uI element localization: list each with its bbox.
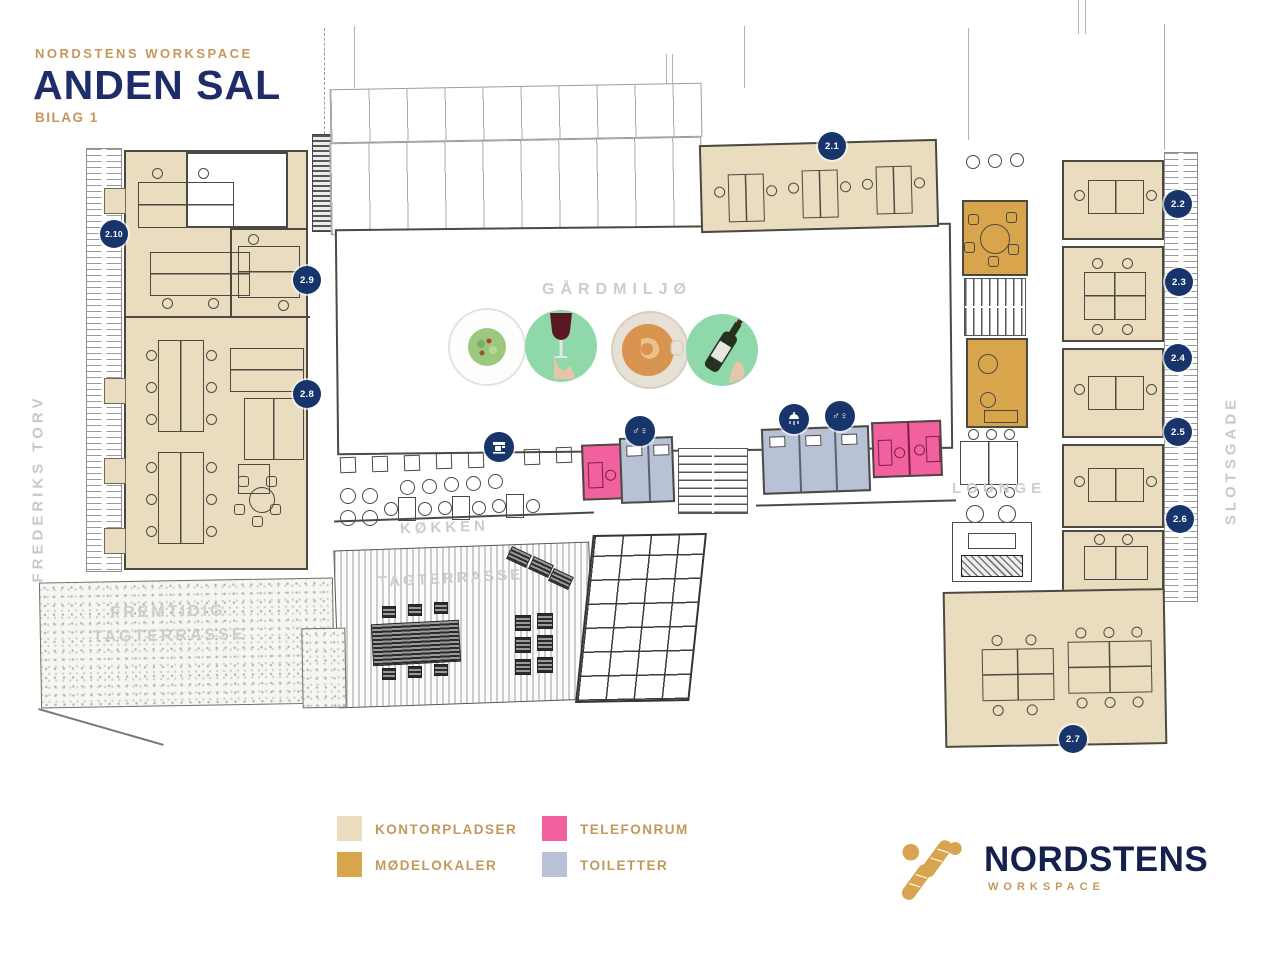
stool [466, 476, 481, 491]
chair [146, 526, 157, 537]
sofa [230, 348, 304, 392]
side-table [980, 392, 996, 408]
long-table [158, 340, 204, 432]
terrace-chair [408, 604, 422, 616]
chair [1074, 384, 1085, 395]
lounge-label: LOUNGE [952, 480, 1046, 497]
terrace-chair [515, 659, 531, 675]
logo-name: NORDSTENS [984, 840, 1208, 880]
chair [438, 501, 452, 515]
room-2-6 [1062, 530, 1164, 592]
desk-cluster [1088, 180, 1144, 214]
phone-room-pair [871, 420, 943, 478]
chair [248, 234, 259, 245]
chair [1077, 697, 1088, 708]
roof-skylights-row1 [330, 83, 703, 143]
brand-text: NORDSTENS WORKSPACE [35, 46, 253, 61]
room-badge-2-8: 2.8 [293, 380, 321, 408]
wall [834, 428, 838, 490]
chair [1122, 258, 1133, 269]
room-badge-2-5: 2.5 [1164, 418, 1192, 446]
coffee-machine-icon [484, 432, 514, 462]
chair [206, 382, 217, 393]
legend-swatch-modelokaler [337, 852, 362, 877]
desk-cluster [802, 170, 839, 219]
toilet-fixture [841, 434, 857, 446]
legend-label-kontorpladser: KONTORPLADSER [375, 822, 517, 837]
desk-cluster [1084, 272, 1146, 320]
toilet-fixture [626, 445, 642, 457]
chair [362, 510, 378, 526]
courtyard-label: GÅRDMILJØ [527, 281, 707, 299]
desk-cluster [1088, 468, 1144, 502]
glass-grid-structure [575, 533, 707, 703]
room-badge-2-6: 2.6 [1166, 505, 1194, 533]
room-2-3 [1062, 246, 1164, 342]
stool [488, 474, 503, 489]
kitchen-counter [404, 455, 421, 472]
chair [788, 183, 799, 194]
chair [1092, 258, 1103, 269]
sofa [244, 398, 304, 460]
terrace-chair [515, 637, 531, 653]
wine-glass-photo [524, 309, 598, 383]
chair [914, 444, 925, 455]
guide-line [354, 26, 355, 88]
long-table [158, 452, 204, 544]
toilet-block [619, 436, 675, 504]
stool [966, 155, 980, 169]
stool [422, 479, 437, 494]
chair [234, 504, 245, 515]
salad-photo [448, 308, 526, 386]
kitchen-label: KØKKEN [400, 517, 490, 537]
room-2-2 [1062, 160, 1164, 240]
room-badge-2-2: 2.2 [1164, 190, 1192, 218]
stool [400, 480, 415, 495]
chair [270, 504, 281, 515]
chair [986, 429, 997, 440]
chair [968, 214, 979, 225]
chair [152, 168, 163, 179]
chair [968, 429, 979, 440]
chair [384, 502, 398, 516]
desk-cluster [728, 173, 765, 222]
meeting-room-top [962, 200, 1028, 276]
tv [968, 533, 1016, 549]
armchair [978, 354, 998, 374]
room-badge-2-7: 2.7 [1059, 725, 1087, 753]
terrace-chair [537, 613, 553, 629]
terrace-chair [382, 668, 396, 680]
chair [964, 242, 975, 253]
chair [146, 494, 157, 505]
terrace-chair [434, 602, 448, 614]
toilet-glyph: ♂♀ [632, 425, 648, 437]
desk-cluster [238, 246, 300, 298]
desk [926, 436, 941, 462]
lounge-table [960, 441, 1018, 485]
desk-cluster [876, 166, 913, 215]
legend-swatch-telefonrum [542, 816, 567, 841]
kitchen-counter [372, 456, 389, 473]
sofa [961, 555, 1023, 577]
window-sill [104, 458, 126, 484]
guide-line [324, 28, 325, 134]
legend-label-toiletter: TOILETTER [580, 858, 668, 873]
chair [1146, 476, 1157, 487]
chair [1105, 697, 1116, 708]
street-label-slotsgade: SLOTSGADE [1223, 311, 1240, 611]
staircase-center [678, 448, 748, 514]
legend-label-telefonrum: TELEFONRUM [580, 822, 689, 837]
chair [472, 501, 486, 515]
chair [418, 502, 432, 516]
chair [146, 462, 157, 473]
cafe-table [398, 497, 416, 521]
chair [206, 526, 217, 537]
chair [252, 516, 263, 527]
cafe-table [506, 494, 524, 518]
chair [198, 168, 209, 179]
meeting-room-mid [966, 338, 1028, 428]
chair [991, 635, 1002, 646]
kitchen-counter [436, 453, 453, 470]
roof-skylights-row2 [329, 137, 703, 235]
guide-line [968, 28, 969, 140]
guide-line [1164, 24, 1165, 150]
stool [444, 477, 459, 492]
terrace-chair [537, 657, 553, 673]
legend-label-modelokaler: MØDELOKALER [375, 858, 497, 873]
wall [230, 228, 308, 230]
legend-swatch-kontorpladser [337, 816, 362, 841]
stair-divider [712, 449, 714, 513]
armchair [966, 505, 984, 523]
terrace-table [371, 620, 461, 667]
chair [208, 298, 219, 309]
chair [238, 476, 249, 487]
room-2-4 [1062, 348, 1164, 438]
guide-line [1078, 0, 1079, 34]
stool [988, 154, 1002, 168]
toilet-block [761, 425, 871, 495]
legend-swatch-toiletter [542, 852, 567, 877]
nordstens-logo-icon [896, 830, 970, 904]
chair [206, 494, 217, 505]
terrace-chair [537, 635, 553, 651]
chair [1027, 704, 1038, 715]
chair [914, 177, 925, 188]
wall [647, 439, 651, 501]
chair [840, 181, 851, 192]
kitchen-counter [340, 457, 357, 474]
wall [798, 430, 802, 492]
chair [278, 300, 289, 311]
wine-bottle-photo [685, 313, 759, 387]
toilet-icon: ♂♀ [825, 401, 855, 431]
coffee-photo [611, 311, 689, 389]
chair [1133, 696, 1144, 707]
chair [362, 488, 378, 504]
cafe-table [452, 496, 470, 520]
wall-hatch-east [1164, 152, 1198, 602]
future-terrace-area [301, 628, 346, 709]
toilet-fixture [769, 436, 785, 448]
kitchen-counter [556, 447, 573, 464]
chair [1094, 534, 1105, 545]
chair [988, 256, 999, 267]
room-badge-2-10: 2.10 [100, 220, 128, 248]
chair [1074, 190, 1085, 201]
room-badge-2-3: 2.3 [1165, 268, 1193, 296]
window-sill [104, 528, 126, 554]
desk-cluster [982, 648, 1055, 701]
page-title: ANDEN SAL [33, 62, 281, 109]
toilet-fixture [805, 435, 821, 447]
wall [907, 423, 911, 475]
chair [605, 470, 616, 481]
chair [862, 179, 873, 190]
chair [1075, 627, 1086, 638]
chair [1103, 627, 1114, 638]
chair [146, 414, 157, 425]
future-terrace-area: FREMTIDIG TAGTERRASSE [39, 577, 335, 708]
room-2-7 [943, 588, 1168, 748]
wall [756, 499, 956, 506]
shower-icon [779, 404, 809, 434]
logo-tagline: WORKSPACE [988, 881, 1105, 893]
chair [146, 382, 157, 393]
terrace-chair [382, 606, 396, 618]
chair [206, 414, 217, 425]
room-badge-2-9: 2.9 [293, 266, 321, 294]
chair [894, 447, 905, 458]
room-2-5 [1062, 444, 1164, 528]
staircase-east [964, 278, 1026, 336]
chair [1146, 190, 1157, 201]
boundary-line [38, 708, 164, 746]
armchair [998, 505, 1016, 523]
chair [1122, 534, 1133, 545]
future-terrace-label-2: TAGTERRASSE [93, 626, 246, 647]
chair [206, 462, 217, 473]
window-sill [104, 188, 126, 214]
chair [1131, 626, 1142, 637]
desk [588, 462, 604, 489]
chair [146, 350, 157, 361]
window-sill [104, 378, 126, 404]
media-unit [952, 522, 1032, 582]
chair [162, 298, 173, 309]
guide-line [744, 26, 745, 88]
desk-cluster [1088, 376, 1144, 410]
toilet-icon: ♂♀ [625, 416, 655, 446]
chair [266, 476, 277, 487]
desk-cluster [150, 252, 250, 296]
chair [714, 186, 725, 197]
chair [526, 499, 540, 513]
terrace-chair [408, 666, 422, 678]
chair [1074, 476, 1085, 487]
chair [206, 350, 217, 361]
round-table [980, 224, 1010, 254]
chair [340, 488, 356, 504]
kitchen-counter [468, 452, 485, 469]
chair [993, 705, 1004, 716]
desk-cluster [138, 182, 234, 228]
stool [1010, 153, 1024, 167]
phone-room [581, 443, 623, 500]
desk-cluster [1084, 546, 1148, 580]
desk [878, 440, 893, 466]
chair [1006, 212, 1017, 223]
chair [1004, 429, 1015, 440]
wall [124, 316, 310, 318]
terrace-chair [515, 615, 531, 631]
chair [1092, 324, 1103, 335]
future-terrace-label-1: FREMTIDIG [110, 602, 225, 622]
kitchen-counter [524, 449, 541, 466]
toilet-glyph: ♂♀ [832, 410, 848, 422]
chair [492, 499, 506, 513]
room-badge-2-1: 2.1 [818, 132, 846, 160]
guide-line [1085, 0, 1086, 34]
chair [1008, 244, 1019, 255]
chair [340, 510, 356, 526]
toilet-fixture [653, 444, 669, 456]
room-badge-2-4: 2.4 [1164, 344, 1192, 372]
chair [766, 185, 777, 196]
stair-landing [965, 306, 1025, 308]
page-subtitle: BILAG 1 [35, 110, 99, 125]
desk-cluster [1068, 640, 1153, 693]
terrace-chair [434, 664, 448, 676]
chair [1146, 384, 1157, 395]
bench [984, 410, 1018, 423]
chair [1025, 634, 1036, 645]
chair [1122, 324, 1133, 335]
